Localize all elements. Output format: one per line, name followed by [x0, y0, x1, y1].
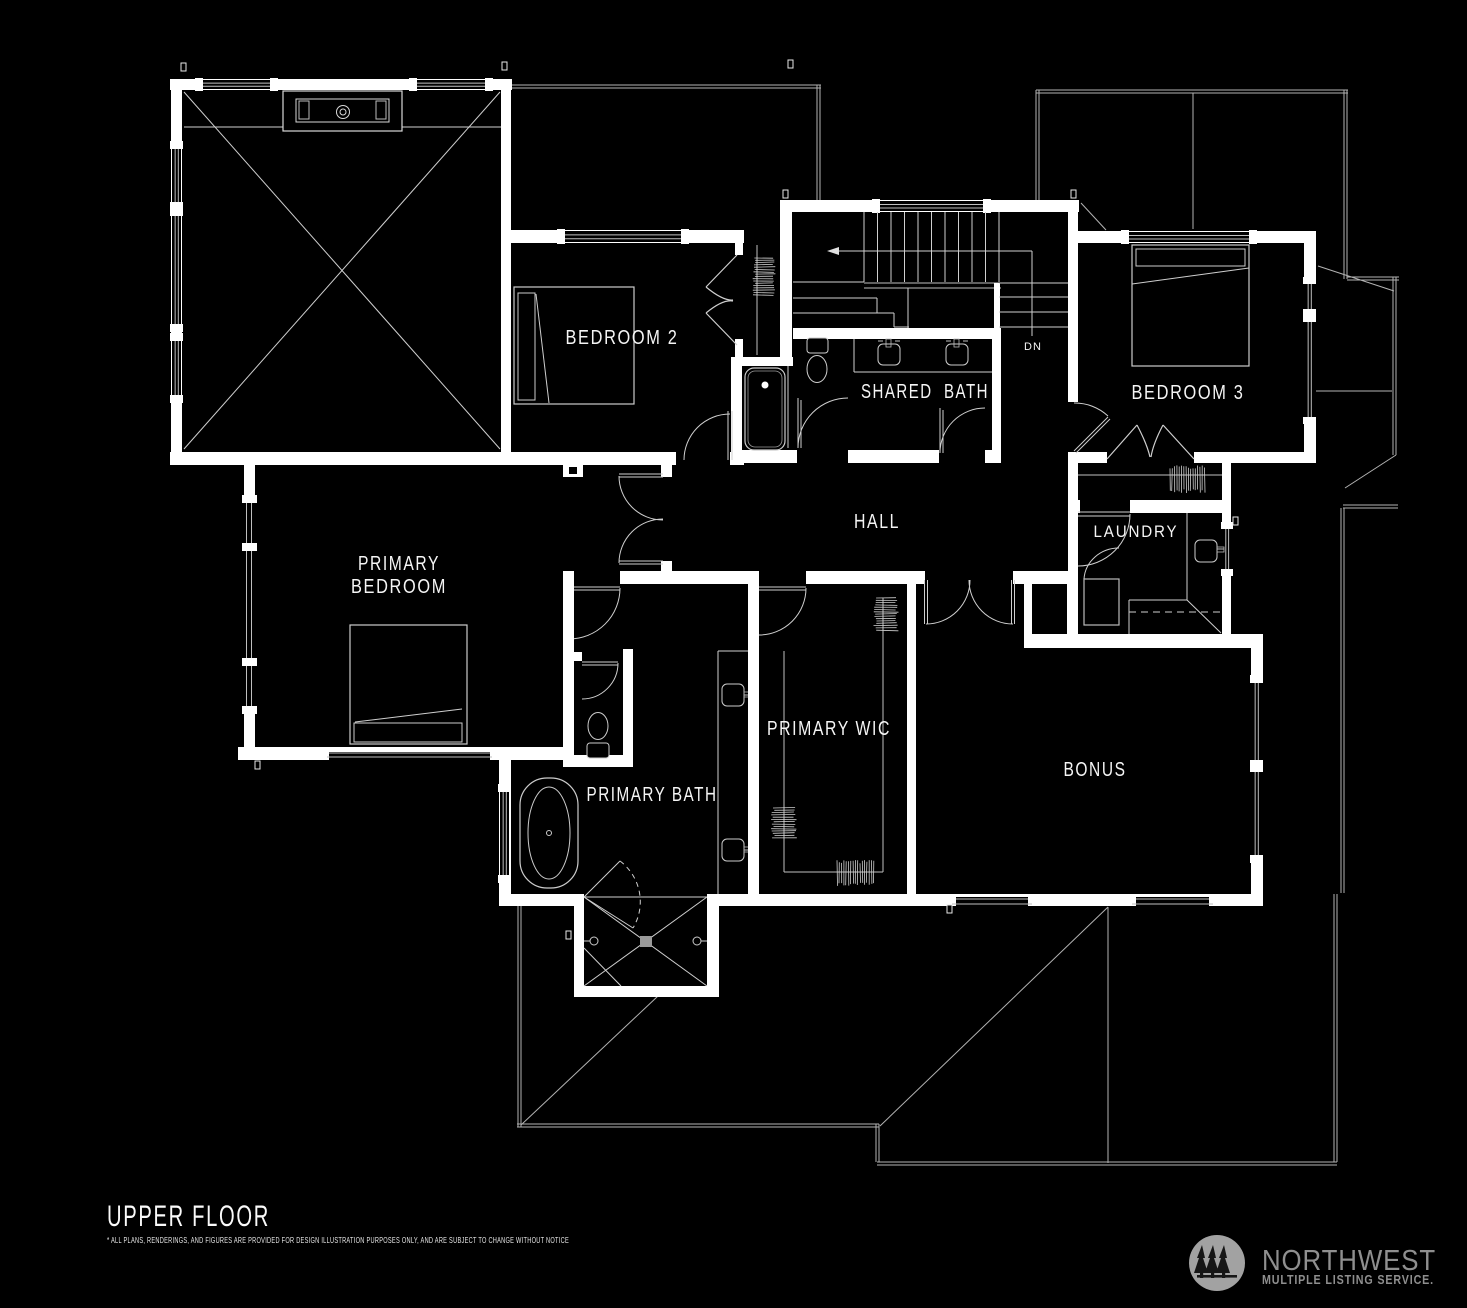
svg-text:BEDROOM 3: BEDROOM 3 [1132, 382, 1245, 404]
svg-text:DN: DN [1024, 341, 1042, 353]
svg-text:BEDROOM 2: BEDROOM 2 [566, 327, 679, 349]
svg-text:HALL: HALL [854, 511, 900, 533]
svg-text:SHARED BATH: SHARED BATH [861, 381, 989, 403]
svg-text:BONUS: BONUS [1064, 759, 1127, 781]
svg-text:UPPER FLOOR: UPPER FLOOR [107, 1200, 270, 1233]
svg-text:* ALL PLANS, RENDERINGS, AND F: * ALL PLANS, RENDERINGS, AND FIGURES ARE… [107, 1236, 569, 1245]
svg-text:PRIMARY WIC: PRIMARY WIC [767, 718, 891, 740]
svg-text:MULTIPLE LISTING SERVICE.: MULTIPLE LISTING SERVICE. [1262, 1273, 1434, 1287]
svg-text:PRIMARY: PRIMARY [358, 553, 440, 575]
svg-text:LAUNDRY: LAUNDRY [1094, 523, 1179, 541]
svg-text:BEDROOM: BEDROOM [351, 576, 447, 598]
svg-text:PRIMARY BATH: PRIMARY BATH [587, 784, 718, 806]
